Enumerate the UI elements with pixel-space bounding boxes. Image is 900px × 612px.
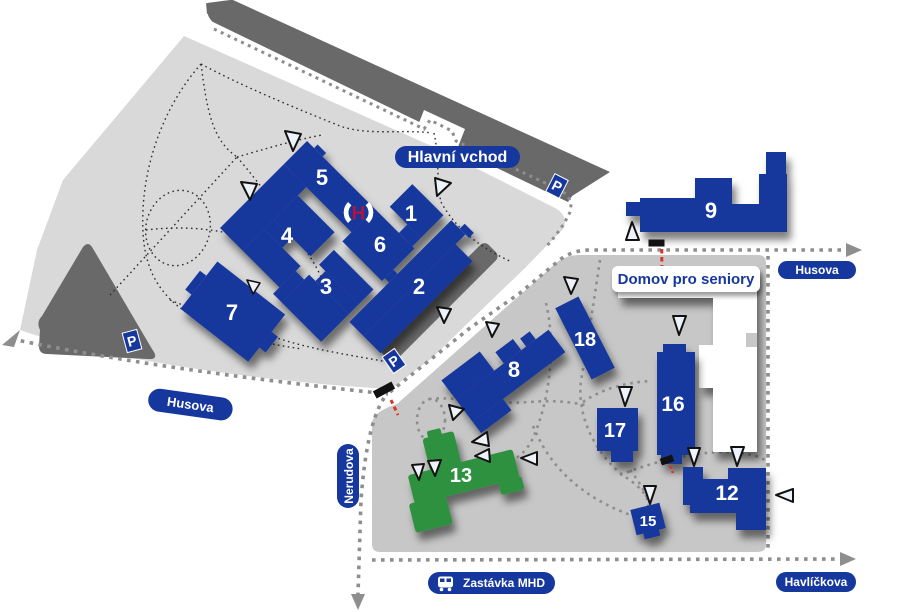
svg-text:13: 13 [450,465,472,487]
svg-text:18: 18 [574,329,596,351]
svg-text:Havlíčkova: Havlíčkova [785,575,848,589]
svg-text:H: H [352,204,366,225]
svg-text:Domov pro seniory: Domov pro seniory [618,271,755,288]
svg-text:3: 3 [320,274,332,299]
svg-text:12: 12 [715,482,738,505]
svg-text:4: 4 [281,223,294,248]
svg-text:8: 8 [508,357,520,382]
svg-text:2: 2 [413,274,425,299]
svg-text:9: 9 [705,198,717,223]
svg-text:17: 17 [604,420,626,442]
svg-text:6: 6 [374,232,386,257]
svg-text:Husova: Husova [795,263,839,277]
svg-text:5: 5 [316,165,328,190]
svg-text:Nerudova: Nerudova [342,448,356,504]
svg-text:Hlavní vchod: Hlavní vchod [408,149,508,166]
svg-text:1: 1 [405,201,417,226]
svg-text:7: 7 [226,300,238,325]
svg-text:16: 16 [661,393,684,416]
svg-text:Zastávka MHD: Zastávka MHD [463,576,545,590]
svg-text:15: 15 [640,513,657,530]
